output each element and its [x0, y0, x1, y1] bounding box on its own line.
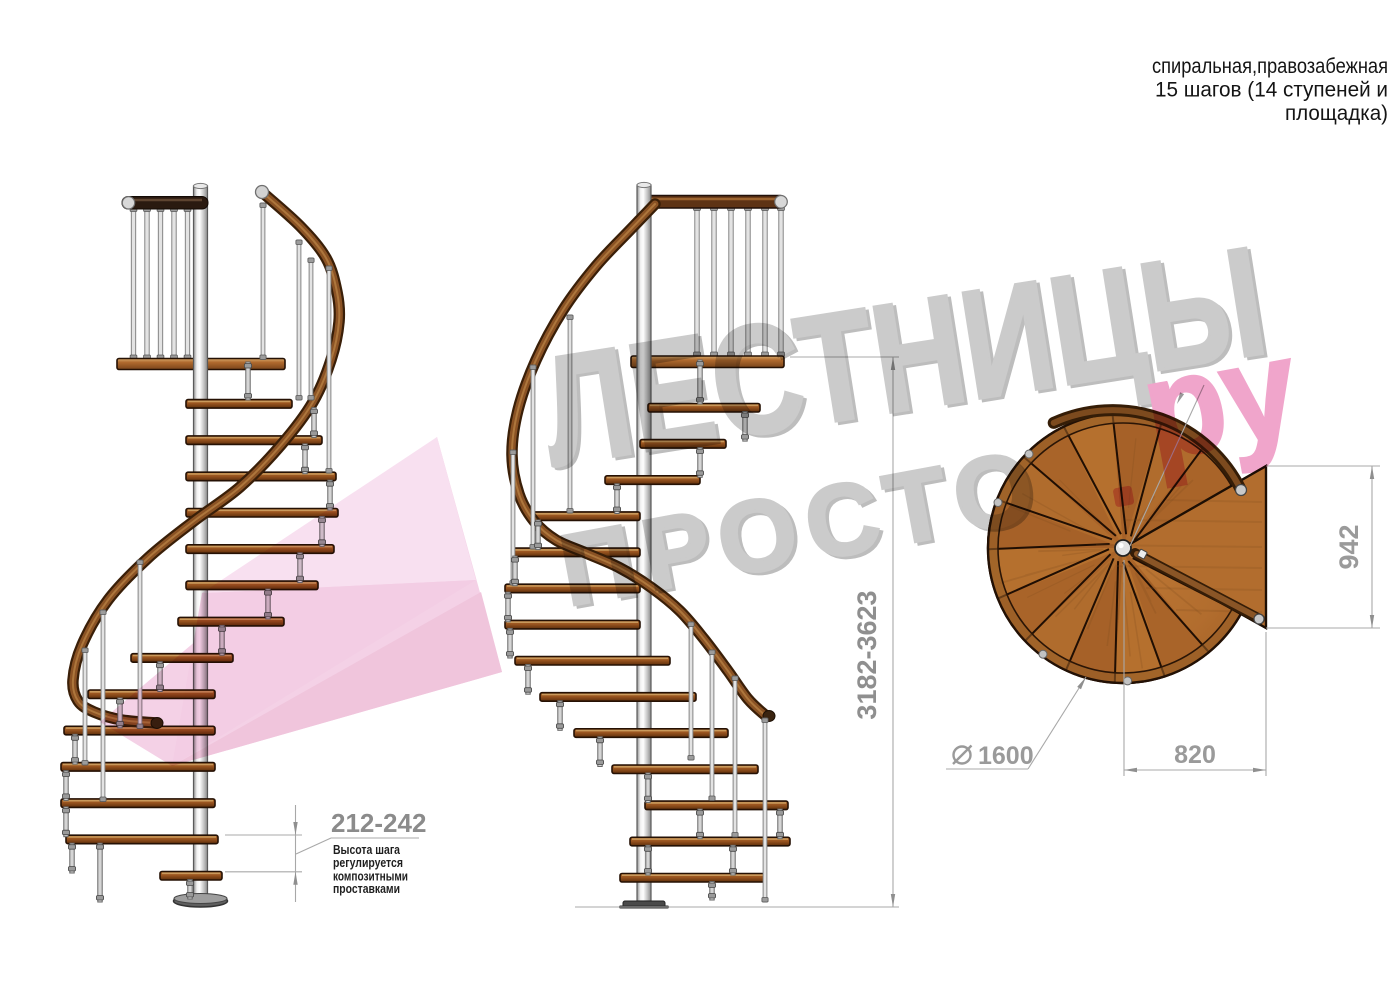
svg-text:942: 942: [1334, 524, 1364, 569]
svg-text:регулируется: регулируется: [333, 856, 403, 870]
svg-text:212-242: 212-242: [331, 808, 426, 838]
svg-text:проставками: проставками: [333, 882, 400, 896]
svg-text:15 шагов (14 ступеней и: 15 шагов (14 ступеней и: [1155, 78, 1388, 102]
svg-text:ру: ру: [1131, 307, 1309, 489]
svg-text:1600: 1600: [978, 742, 1034, 770]
svg-text:площадка): площадка): [1285, 101, 1388, 125]
svg-text:спиральная,правозабежная: спиральная,правозабежная: [1152, 54, 1388, 78]
svg-text:3182-3623: 3182-3623: [852, 590, 882, 719]
svg-text:820: 820: [1174, 741, 1216, 769]
svg-text:Высота шага: Высота шага: [333, 843, 401, 857]
